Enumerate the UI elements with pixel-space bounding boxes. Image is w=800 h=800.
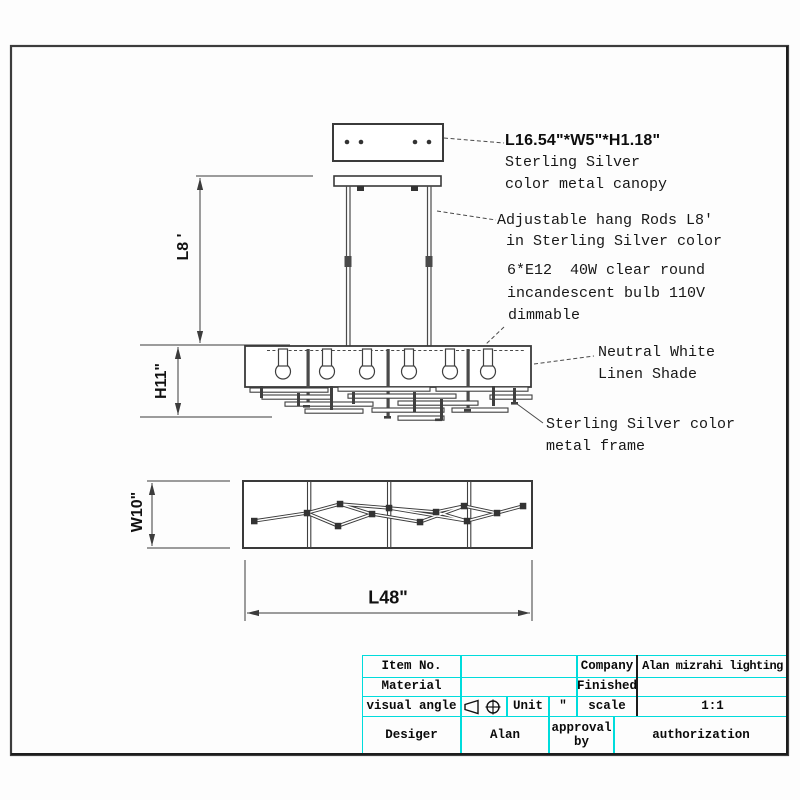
leader-shade bbox=[534, 356, 594, 364]
title-item-no-value bbox=[461, 655, 577, 678]
dim-label-l8: L8 ' bbox=[175, 234, 193, 261]
title-company-label: Company bbox=[577, 655, 637, 678]
rods-note-line2: in Sterling Silver color bbox=[506, 233, 722, 250]
bulb bbox=[481, 349, 496, 379]
frame-assembly-front bbox=[250, 386, 532, 421]
canopy-screw-hole bbox=[413, 140, 418, 145]
bulb-note-line2: incandescent bulb 110V bbox=[507, 285, 705, 302]
rod-adjuster bbox=[426, 256, 433, 267]
frame-note-line1: Sterling Silver color bbox=[546, 416, 735, 433]
rods-note-line1: Adjustable hang Rods L8' bbox=[497, 212, 713, 229]
frame-posts bbox=[260, 386, 518, 421]
canopy-note-line3: color metal canopy bbox=[505, 176, 667, 193]
canopy-screw-hole bbox=[345, 140, 350, 145]
title-designer-label: Desiger bbox=[362, 716, 461, 755]
title-authorization-label: authorization bbox=[614, 716, 788, 755]
bulb-note-line3: dimmable bbox=[508, 307, 580, 324]
technical-drawing-page: L16.54"*W5"*H1.18" Sterling Silver color… bbox=[0, 0, 800, 800]
frame-bottom-edge bbox=[11, 753, 788, 755]
support-posts bbox=[307, 349, 470, 418]
bulb bbox=[443, 349, 458, 379]
dim-label-h11: H11" bbox=[153, 363, 171, 399]
rod-adjuster bbox=[345, 256, 352, 267]
hang-rods bbox=[345, 186, 433, 346]
canopy-dimension-note: L16.54"*W5"*H1.18" bbox=[505, 132, 660, 150]
title-finished-label: Finished bbox=[577, 677, 637, 697]
shade-note-line1: Neutral White bbox=[598, 344, 715, 361]
shade-note-line2: Linen Shade bbox=[598, 366, 697, 383]
title-material-value bbox=[461, 677, 577, 697]
dimension-l8 bbox=[196, 176, 313, 343]
title-finished-value bbox=[637, 677, 788, 697]
canopy-side-view bbox=[334, 176, 441, 191]
title-material-label: Material bbox=[362, 677, 461, 697]
title-unit-value: ″ bbox=[549, 696, 577, 717]
canopy-screw-hole bbox=[427, 140, 432, 145]
canopy-note-line2: Sterling Silver bbox=[505, 154, 640, 171]
dimension-w10 bbox=[147, 481, 230, 548]
bulb bbox=[402, 349, 417, 379]
dim-label-l48: L48" bbox=[368, 588, 408, 609]
shade-front-view bbox=[245, 346, 531, 387]
canopy-screw-hole bbox=[359, 140, 364, 145]
title-unit-label: Unit bbox=[507, 696, 549, 717]
canopy-top-view bbox=[333, 124, 443, 161]
dim-label-w10: W10" bbox=[129, 492, 147, 532]
bulb bbox=[360, 349, 375, 379]
rod-joints bbox=[251, 501, 526, 530]
bulb bbox=[276, 349, 291, 379]
bulb bbox=[320, 349, 335, 379]
title-designer-value: Alan bbox=[461, 716, 549, 755]
title-scale-value: 1:1 bbox=[637, 696, 788, 717]
title-item-no-label: Item No. bbox=[362, 655, 461, 678]
bottom-view-rods bbox=[251, 501, 526, 530]
bottom-view-dividers bbox=[308, 481, 471, 548]
bulbs bbox=[276, 349, 496, 379]
leader-bulb bbox=[484, 327, 504, 346]
title-scale-label: scale bbox=[577, 696, 637, 717]
title-approval-label: approval by bbox=[549, 716, 614, 755]
title-projection-symbols bbox=[461, 696, 507, 717]
bulb-note-line1: 6*E12 40W clear round bbox=[507, 262, 705, 279]
frame-right-edge bbox=[786, 46, 788, 755]
leader-frame bbox=[513, 401, 543, 423]
bottom-view bbox=[243, 481, 532, 548]
cone-view-icon bbox=[465, 700, 478, 713]
title-company-value: Alan mizrahi lighting bbox=[637, 655, 788, 678]
leader-rods bbox=[437, 211, 496, 220]
frame-note-line2: metal frame bbox=[546, 438, 645, 455]
projection-symbol-icon bbox=[463, 698, 505, 716]
drawing-border-frame bbox=[11, 46, 788, 755]
title-visual-angle-label: visual angle bbox=[362, 696, 461, 717]
leader-canopy bbox=[444, 138, 504, 143]
